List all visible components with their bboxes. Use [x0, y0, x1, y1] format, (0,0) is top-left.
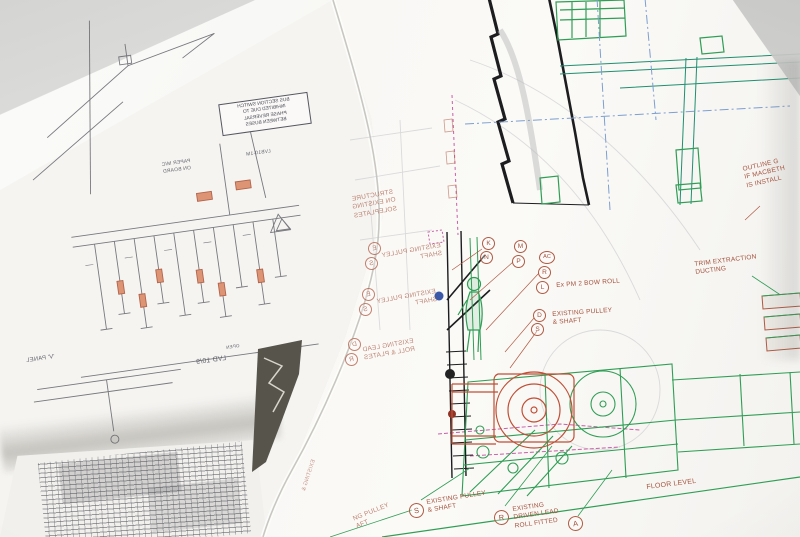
structure-note-mirrored: STRUCTURE ON EXISTING SOLEPLATES	[350, 188, 398, 221]
callout-D-mirrored: D	[347, 337, 362, 352]
callout-E-mirrored: E	[367, 241, 382, 256]
callout-R: R	[538, 266, 551, 279]
bus-label: LVB10-1M	[246, 148, 272, 158]
pulley-label-mirrored: EXISTING PULLEY SHAFT	[381, 242, 443, 269]
callout-R-bottom: R	[493, 509, 510, 526]
open-label: OPEN	[226, 343, 240, 351]
bus-section-warning-box: BUS SECTION SWITCH INHIBITED DUE TO PHAS…	[218, 92, 312, 136]
callout-R-mirrored: R	[344, 352, 359, 367]
callout-K: K	[482, 237, 495, 250]
callout-A-bottom: A	[567, 515, 584, 532]
panel-label: 'V' PANEL	[26, 354, 56, 366]
floor-level-label: FLOOR LEVEL	[646, 477, 697, 492]
existing-pulley-bottom-label: EXISTING PULLEY & SHAFT	[426, 490, 488, 516]
callout-L: L	[536, 281, 549, 294]
callout-S-mirrored: S	[364, 256, 379, 271]
pulley-fragment-label: NG PULLEY AFT	[352, 502, 394, 532]
callout-S-bottom: S	[408, 502, 425, 519]
callout-AC: AC	[539, 251, 555, 264]
lead-label-mirrored: EXISTING LEAD ROLL & PLATES	[362, 338, 416, 364]
pulley-label-mirrored: EXISTING PULLEY SHAFT	[376, 288, 438, 315]
callout-S: S	[531, 323, 544, 336]
callout-N: N	[480, 251, 493, 264]
labels-layer: BUS SECTION SWITCH INHIBITED DUE TO PHAS…	[0, 0, 800, 537]
existing-small-mirrored: EXISTING &	[301, 459, 318, 492]
bow-roll-label: Ex PM 2 BOW ROLL	[556, 278, 620, 291]
photo-of-engineering-drawings: BUS SECTION SWITCH INHIBITED DUE TO PHAS…	[0, 0, 800, 537]
trim-extraction-label: TRIM EXTRACTION DUCTING	[694, 253, 758, 277]
callout-D: D	[533, 309, 546, 322]
callout-E-mirrored: E	[361, 287, 376, 302]
driven-lead-roll-label: EXISTING DRIVEN LEAD ROLL FITTED	[512, 500, 561, 531]
callout-M: M	[514, 240, 527, 253]
callout-P: P	[512, 255, 525, 268]
callout-S-mirrored: S	[358, 302, 373, 317]
feeder-label: LVD 10/9	[196, 354, 227, 367]
board-label: PAPER M/C ON BOARD	[161, 158, 191, 175]
pulley-shaft-label: EXISTING PULLEY & SHAFT	[552, 307, 613, 328]
outline-note: OUTLINE G IF MACBETH IS INSTALL	[742, 157, 788, 191]
